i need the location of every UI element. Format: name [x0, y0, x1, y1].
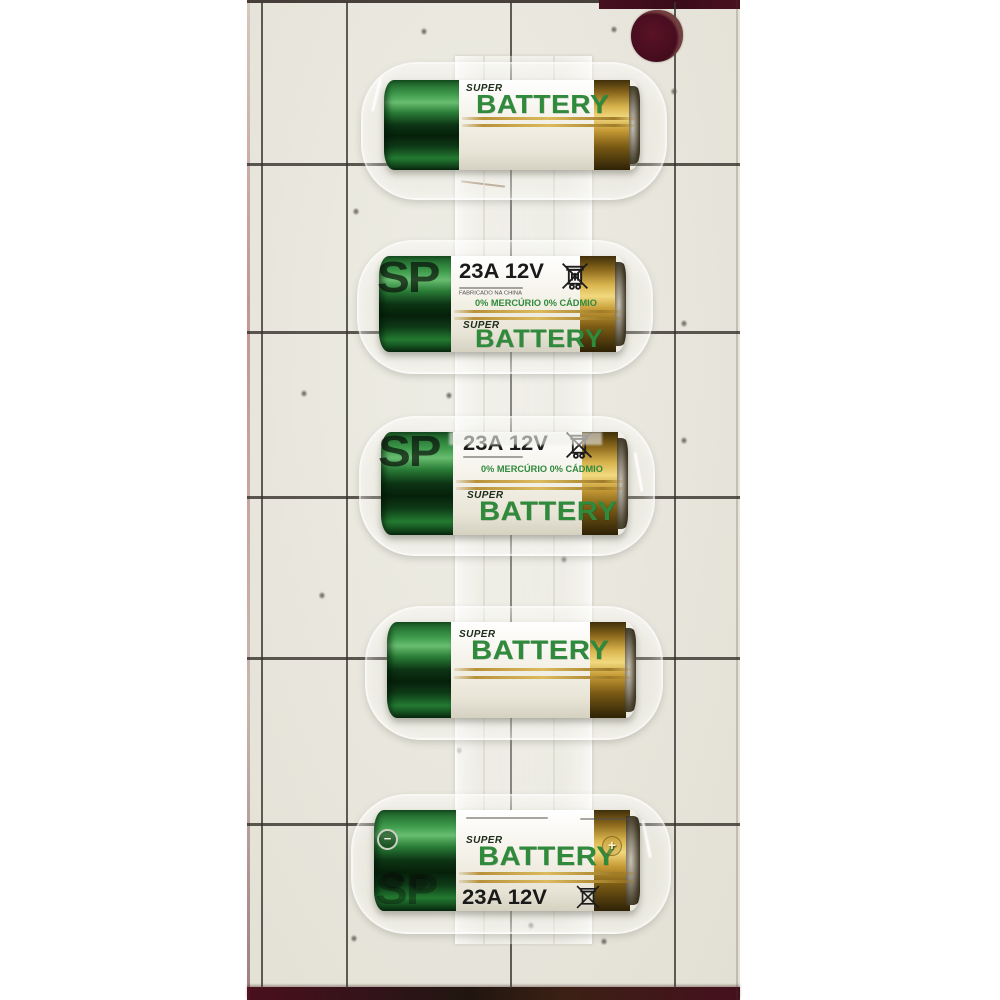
brand-battery-text: BATTERY	[476, 89, 609, 120]
fine-print-line	[459, 287, 523, 289]
spec-text: 23A 12V	[462, 886, 547, 910]
gold-pinstripe	[454, 310, 621, 313]
speck	[671, 88, 677, 95]
crossed-bin-icon	[570, 882, 606, 911]
grid-line-vertical	[346, 2, 348, 988]
origin-text: FABRICADO NA CHINA	[459, 290, 522, 296]
brand-battery-text: BATTERY	[475, 325, 603, 352]
speck	[351, 935, 357, 942]
fine-print-line	[463, 456, 523, 458]
speck	[681, 437, 687, 444]
speck	[353, 208, 359, 215]
backing-card: SUPER BATTERY 23A 12V FABRICADO NA CHINA	[247, 0, 740, 1000]
plastic-highlight	[449, 432, 602, 445]
grid-line-vertical	[674, 2, 676, 988]
speck	[601, 938, 607, 945]
card-watermark-text: SP	[377, 256, 464, 300]
plus-mark: +	[602, 836, 622, 856]
product-photo: SUPER BATTERY 23A 12V FABRICADO NA CHINA	[0, 0, 1000, 1000]
speck	[319, 592, 325, 599]
speck	[681, 320, 687, 327]
speck	[421, 28, 427, 35]
gold-pinstripe	[462, 124, 635, 127]
battery-1: SUPER BATTERY	[384, 80, 640, 170]
speck	[301, 390, 307, 397]
battery-4: SUPER BATTERY	[387, 622, 636, 718]
hang-hole	[631, 10, 683, 62]
gold-pinstripe	[454, 668, 631, 671]
battery-positive-terminal	[615, 262, 626, 346]
speck	[611, 26, 617, 33]
card-top-edge	[247, 0, 607, 3]
eco-text: 0% MERCÚRIO 0% CÁDMIO	[475, 298, 597, 309]
brand-battery-text: BATTERY	[479, 496, 617, 527]
crossed-bin-icon	[555, 259, 595, 293]
gold-pinstripe	[454, 676, 631, 679]
minus-mark: −	[377, 829, 398, 850]
gold-pinstripe	[459, 880, 635, 883]
gold-pinstripe	[456, 480, 623, 483]
card-left-edge	[247, 0, 250, 1000]
battery-positive-terminal	[626, 816, 640, 905]
maroon-top-strip	[599, 0, 740, 9]
gold-pinstripe	[459, 872, 635, 875]
eco-text: 0% MERCÚRIO 0% CÁDMIO	[481, 464, 603, 475]
fine-print-line	[466, 817, 548, 819]
battery-positive-terminal	[617, 438, 628, 529]
card-right-edge	[736, 0, 738, 1000]
battery-green-cap	[387, 622, 451, 718]
card-watermark-text: SP	[378, 430, 465, 470]
grid-line-vertical	[261, 2, 263, 988]
fine-print-line	[580, 818, 632, 820]
maroon-bottom-strip	[247, 987, 740, 1000]
brand-battery-text: BATTERY	[471, 635, 609, 666]
brand-battery-text: BATTERY	[478, 841, 616, 872]
speck	[446, 392, 452, 399]
spec-text: 23A 12V	[459, 260, 544, 284]
card-watermark-text: SP	[375, 868, 460, 904]
battery-green-cap	[384, 80, 459, 170]
